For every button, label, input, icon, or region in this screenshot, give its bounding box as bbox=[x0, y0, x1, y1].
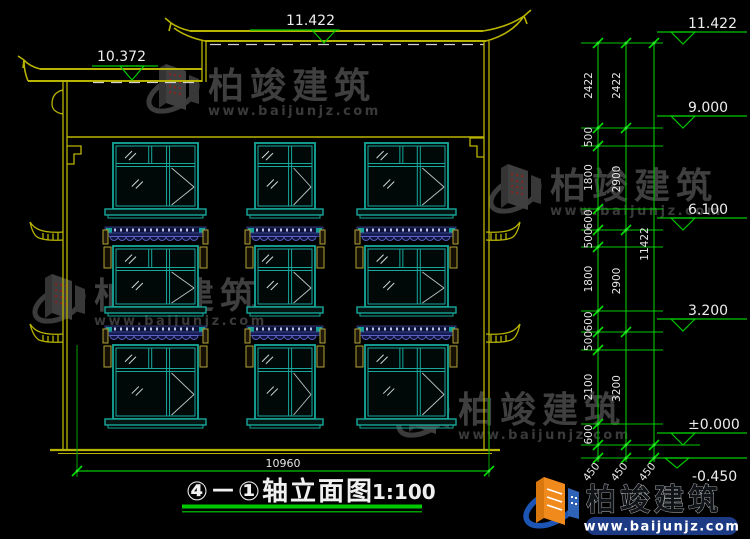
elevation-value-top-left: 10.372 bbox=[97, 49, 146, 65]
elevation-marker: ±0.000 bbox=[657, 417, 747, 445]
elevation-value-top-main: 11.422 bbox=[286, 13, 335, 29]
cad-elevation-screenshot: 柏竣建筑 www.baijunjz.com bbox=[0, 0, 750, 539]
window-sill bbox=[357, 209, 456, 215]
dimension-value: 2900 bbox=[611, 268, 623, 295]
title-block: ④－①轴立面图 1:100 bbox=[182, 476, 436, 513]
window-awning bbox=[103, 326, 208, 343]
window-awning bbox=[245, 326, 325, 343]
baijun-logo-color-icon bbox=[520, 477, 581, 533]
elevation-value: 11.422 bbox=[688, 16, 737, 32]
dimension-value: 2422 bbox=[611, 72, 623, 99]
window-sill bbox=[357, 307, 456, 313]
dimension-value: 2100 bbox=[583, 374, 595, 401]
foundation-offset-value: 450 bbox=[581, 461, 603, 484]
dimension-value: 600 bbox=[583, 311, 595, 331]
window bbox=[357, 345, 456, 428]
window-awning bbox=[355, 227, 458, 244]
window-sill bbox=[357, 419, 456, 425]
elevation-marker-top-main: 11.422 bbox=[250, 13, 340, 43]
elevation-markers-right: 11.4229.0006.1003.200±0.000-0.450 bbox=[657, 16, 747, 485]
awning-corbel bbox=[103, 329, 108, 343]
window-pilaster bbox=[450, 346, 457, 367]
awning-corbel bbox=[355, 329, 360, 343]
elevation-marker: 11.422 bbox=[657, 16, 747, 44]
window bbox=[105, 246, 206, 316]
elevation-value: 6.100 bbox=[688, 202, 728, 218]
left-wall-curl bbox=[52, 90, 63, 114]
elevation-marker-top-left: 10.372 bbox=[92, 49, 158, 80]
awning-corbel bbox=[203, 329, 208, 343]
awning-corbel bbox=[355, 230, 360, 244]
window-pilaster bbox=[104, 346, 111, 367]
ground-line bbox=[50, 450, 500, 454]
dimension-value: 600 bbox=[583, 424, 595, 444]
dimension-value: 3200 bbox=[611, 375, 623, 402]
window bbox=[105, 345, 206, 428]
window-pilaster bbox=[246, 346, 253, 367]
bottom-width-value: 10960 bbox=[266, 457, 301, 470]
window-pilaster bbox=[356, 247, 363, 268]
elevation-value: 9.000 bbox=[688, 100, 728, 116]
elevation-value: 3.200 bbox=[688, 303, 728, 319]
drawing-scale: 1:100 bbox=[372, 480, 436, 504]
title-underline-thick bbox=[182, 505, 422, 509]
window-sill bbox=[247, 209, 323, 215]
window bbox=[357, 143, 456, 218]
window-pilaster bbox=[317, 346, 324, 367]
dimension-value: 11422 bbox=[639, 227, 651, 260]
window bbox=[357, 246, 456, 316]
elevation-value: ±0.000 bbox=[688, 417, 740, 433]
window-awning bbox=[103, 227, 208, 244]
window-awning bbox=[355, 326, 458, 343]
window-sill bbox=[247, 307, 323, 313]
awning-corbel bbox=[453, 329, 458, 343]
dimension-value: 500 bbox=[583, 331, 595, 351]
awning-corbel bbox=[245, 230, 250, 244]
elevation-drawing: 柏竣建筑 www.baijunjz.com bbox=[0, 0, 750, 539]
brand-logo: 柏竣建筑 www.baijunjz.com bbox=[520, 477, 740, 535]
awning-corbel bbox=[103, 230, 108, 244]
dimension-value: 1800 bbox=[583, 266, 595, 293]
dimension-value: 500 bbox=[583, 228, 595, 248]
dimension-value: 2900 bbox=[611, 166, 623, 193]
foundation-offset-value: 450 bbox=[637, 461, 659, 484]
logo-brand-text: 柏竣建筑 bbox=[586, 483, 722, 518]
right-wall-molding bbox=[470, 138, 484, 157]
awning-corbel bbox=[245, 329, 250, 343]
dimension-value: 500 bbox=[583, 127, 595, 147]
windows-group bbox=[103, 143, 458, 428]
window bbox=[247, 246, 323, 316]
window-sill bbox=[247, 419, 323, 425]
window-sill bbox=[105, 419, 206, 425]
window bbox=[105, 143, 206, 218]
awning-corbel bbox=[320, 230, 325, 244]
window-pilaster bbox=[246, 247, 253, 268]
elevation-marker: 9.000 bbox=[657, 100, 747, 128]
elevation-marker: -0.450 bbox=[657, 458, 747, 485]
window-pilaster bbox=[356, 346, 363, 367]
window-awning bbox=[245, 227, 325, 244]
window-pilaster bbox=[200, 346, 207, 367]
window-sill bbox=[105, 209, 206, 215]
dimension-value: 1800 bbox=[583, 164, 595, 191]
awning-corbel bbox=[203, 230, 208, 244]
awning-corbel bbox=[453, 230, 458, 244]
foundation-offset-value: 450 bbox=[609, 461, 631, 484]
awning-corbel bbox=[320, 329, 325, 343]
window-sill bbox=[105, 307, 206, 313]
window-pilaster bbox=[450, 247, 457, 268]
window-pilaster bbox=[200, 247, 207, 268]
window bbox=[247, 345, 323, 428]
title-underline-thin bbox=[182, 511, 422, 513]
dimension-value: 600 bbox=[583, 209, 595, 229]
drawing-title: ④－①轴立面图 bbox=[186, 476, 374, 507]
window-pilaster bbox=[317, 247, 324, 268]
logo-url-text: www.baijunjz.com bbox=[584, 520, 741, 535]
dimension-value: 2422 bbox=[583, 72, 595, 99]
left-wall-molding bbox=[67, 146, 81, 164]
window-pilaster bbox=[104, 247, 111, 268]
elevation-marker: 3.200 bbox=[657, 303, 747, 331]
window bbox=[247, 143, 323, 218]
